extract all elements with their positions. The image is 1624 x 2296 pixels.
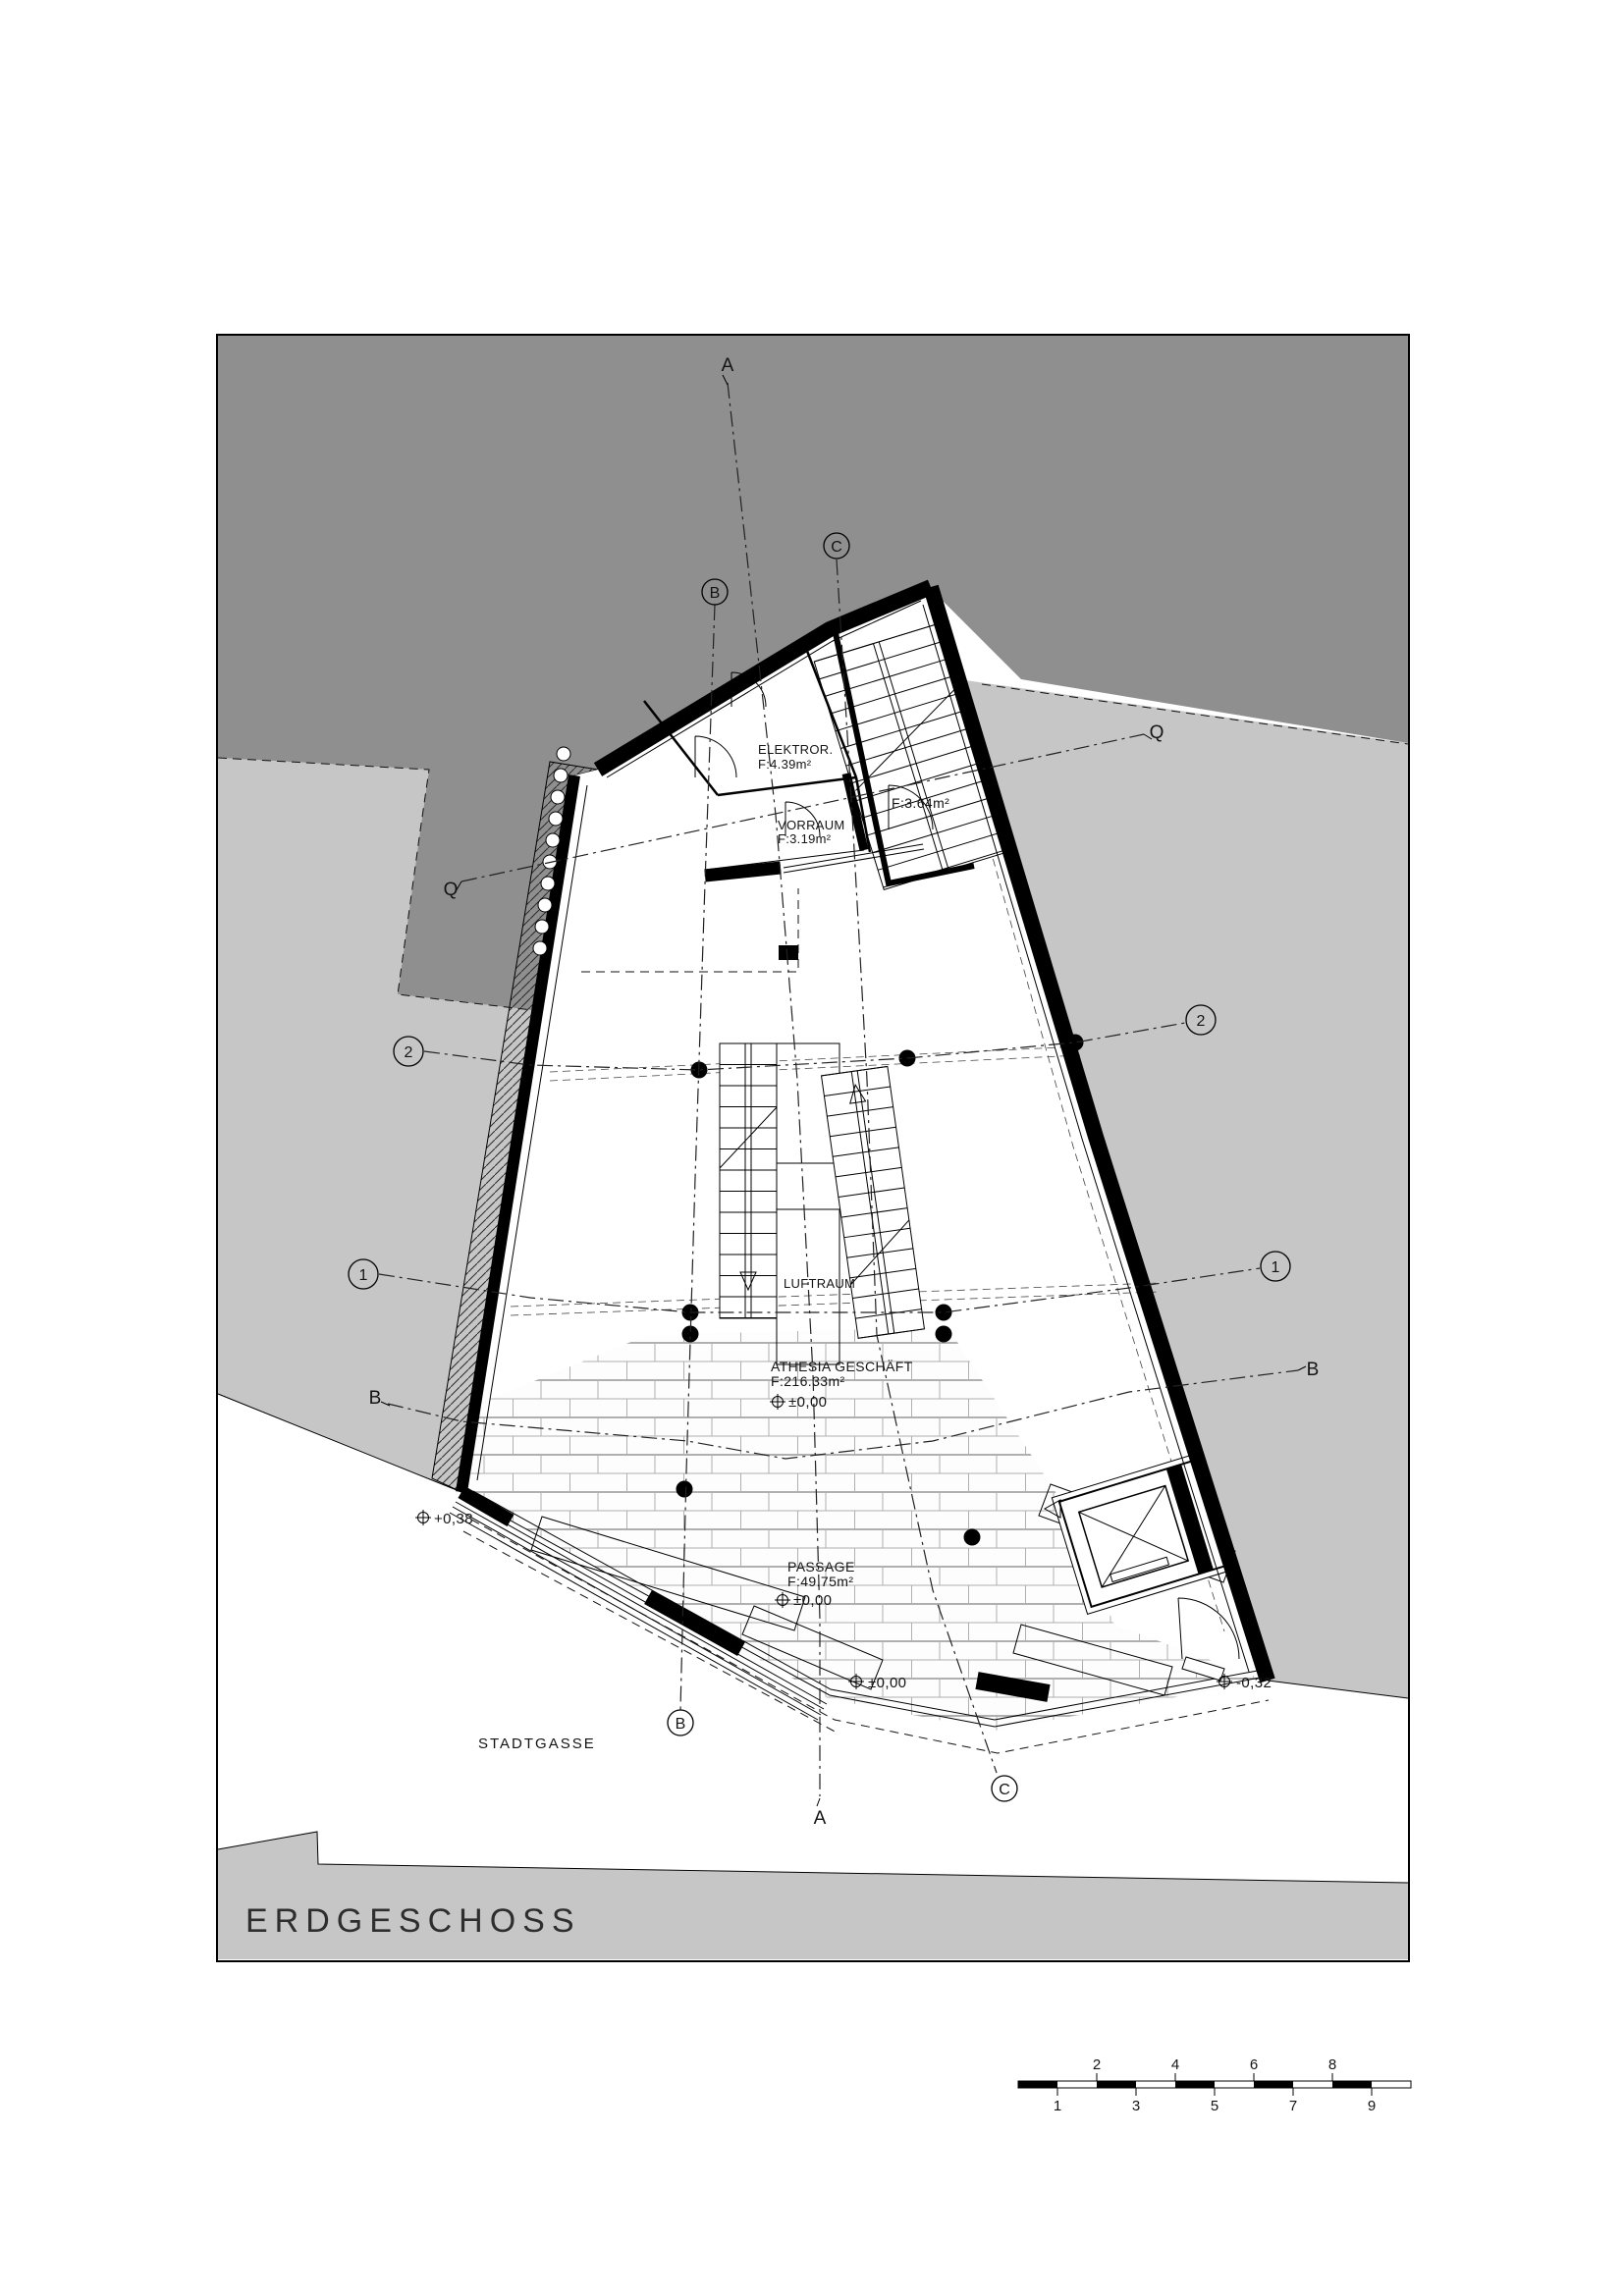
scale-label-7: 7 (1289, 2098, 1297, 2114)
room-level-athesia: ±0,00 (788, 1394, 827, 1411)
room-level-passage: ±0,00 (793, 1592, 832, 1609)
floor-plan-svg: B C 2 1 2 1 B C A Q Q B B A ELEKTROR. F:… (0, 0, 1624, 2296)
room-area-athesia: F:216.33m² (771, 1373, 845, 1389)
entrance-pier (705, 868, 781, 876)
grid-marker-c-bottom-label: C (999, 1782, 1010, 1798)
axis-marker-q-right-label: Q (1150, 722, 1164, 743)
room-label-luftraum: LUFTRAUM (784, 1276, 855, 1291)
scale-label-9: 9 (1368, 2098, 1376, 2114)
scale-label-8: 8 (1328, 2056, 1336, 2073)
scale-label-4: 4 (1171, 2056, 1179, 2073)
grid-marker-b-bottom-label: B (676, 1716, 686, 1733)
axis-marker-2-right-label: 2 (1197, 1013, 1206, 1030)
level-front: ±0,00 (868, 1675, 906, 1691)
room-label-passage: PASSAGE (787, 1559, 855, 1575)
room-area-stairwell: F:3.64m² (892, 795, 949, 811)
grid-marker-c-top-label: C (831, 539, 842, 556)
scale-label-6: 6 (1250, 2056, 1258, 2073)
front-pier-right (977, 1681, 1049, 1693)
room-area-vorraum: F:3.19m² (778, 831, 832, 846)
level-sw: +0,38 (434, 1511, 473, 1527)
grid-marker-b-top-label: B (710, 585, 721, 602)
scale-label-2: 2 (1093, 2056, 1101, 2073)
axis-marker-q-left-label: Q (444, 880, 459, 900)
section-marker-a-top-label: A (722, 355, 734, 376)
scale-label-1: 1 (1054, 2098, 1061, 2114)
room-label-athesia: ATHESIA GESCHÄFT (771, 1359, 913, 1374)
room-area-elektror: F:4.39m² (758, 757, 812, 772)
section-marker-b-left-label: B (369, 1388, 382, 1409)
level-se: -0,32 (1236, 1675, 1272, 1691)
scale-label-5: 5 (1211, 2098, 1218, 2114)
axis-marker-2-left-label: 2 (405, 1044, 413, 1061)
free-column (779, 945, 798, 960)
scale-label-3: 3 (1132, 2098, 1140, 2114)
room-area-passage: F:49.75m² (787, 1574, 853, 1589)
axis-marker-1-right-label: 1 (1272, 1259, 1280, 1276)
section-marker-b-right-label: B (1307, 1360, 1320, 1380)
axis-marker-1-left-label: 1 (359, 1267, 368, 1284)
stair-central-left-flight (720, 1043, 777, 1318)
sheet-title: ERDGESCHOSS (245, 1902, 581, 1940)
room-label-elektror: ELEKTROR. (758, 742, 833, 757)
section-marker-a-bottom-label: A (814, 1808, 827, 1829)
room-label-vorraum: VORRAUM (778, 818, 845, 832)
drawing-sheet: B C 2 1 2 1 B C A Q Q B B A ELEKTROR. F:… (0, 0, 1624, 2296)
street-label: STADTGASSE (478, 1735, 596, 1752)
scale-bar: 2 4 6 8 1 3 5 7 9 (1018, 2056, 1411, 2114)
